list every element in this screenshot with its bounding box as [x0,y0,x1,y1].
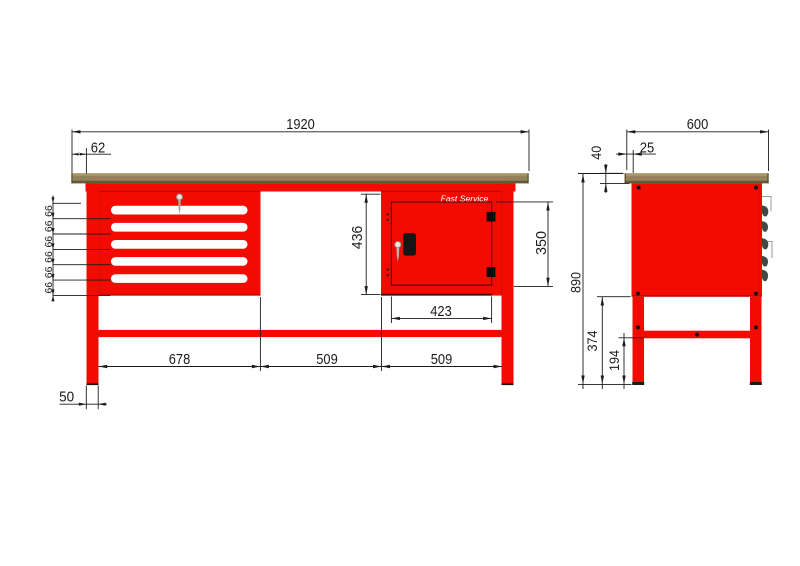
svg-text:194: 194 [606,350,622,371]
svg-text:374: 374 [584,330,600,351]
svg-text:436: 436 [350,226,366,250]
svg-text:25: 25 [640,140,655,157]
svg-text:62: 62 [91,140,106,157]
svg-text:66: 66 [43,205,55,217]
svg-text:350: 350 [534,231,550,255]
svg-text:600: 600 [687,116,709,133]
svg-text:509: 509 [431,351,453,368]
svg-text:678: 678 [169,351,191,368]
svg-text:40: 40 [588,146,604,160]
svg-text:50: 50 [59,389,74,406]
svg-text:66: 66 [43,282,55,294]
svg-text:423: 423 [430,303,452,320]
svg-text:66: 66 [43,236,55,248]
svg-text:66: 66 [43,266,55,278]
svg-text:890: 890 [567,272,583,293]
svg-text:66: 66 [43,251,55,263]
svg-text:1920: 1920 [286,116,315,133]
svg-text:509: 509 [316,351,338,368]
svg-text:66: 66 [43,220,55,232]
